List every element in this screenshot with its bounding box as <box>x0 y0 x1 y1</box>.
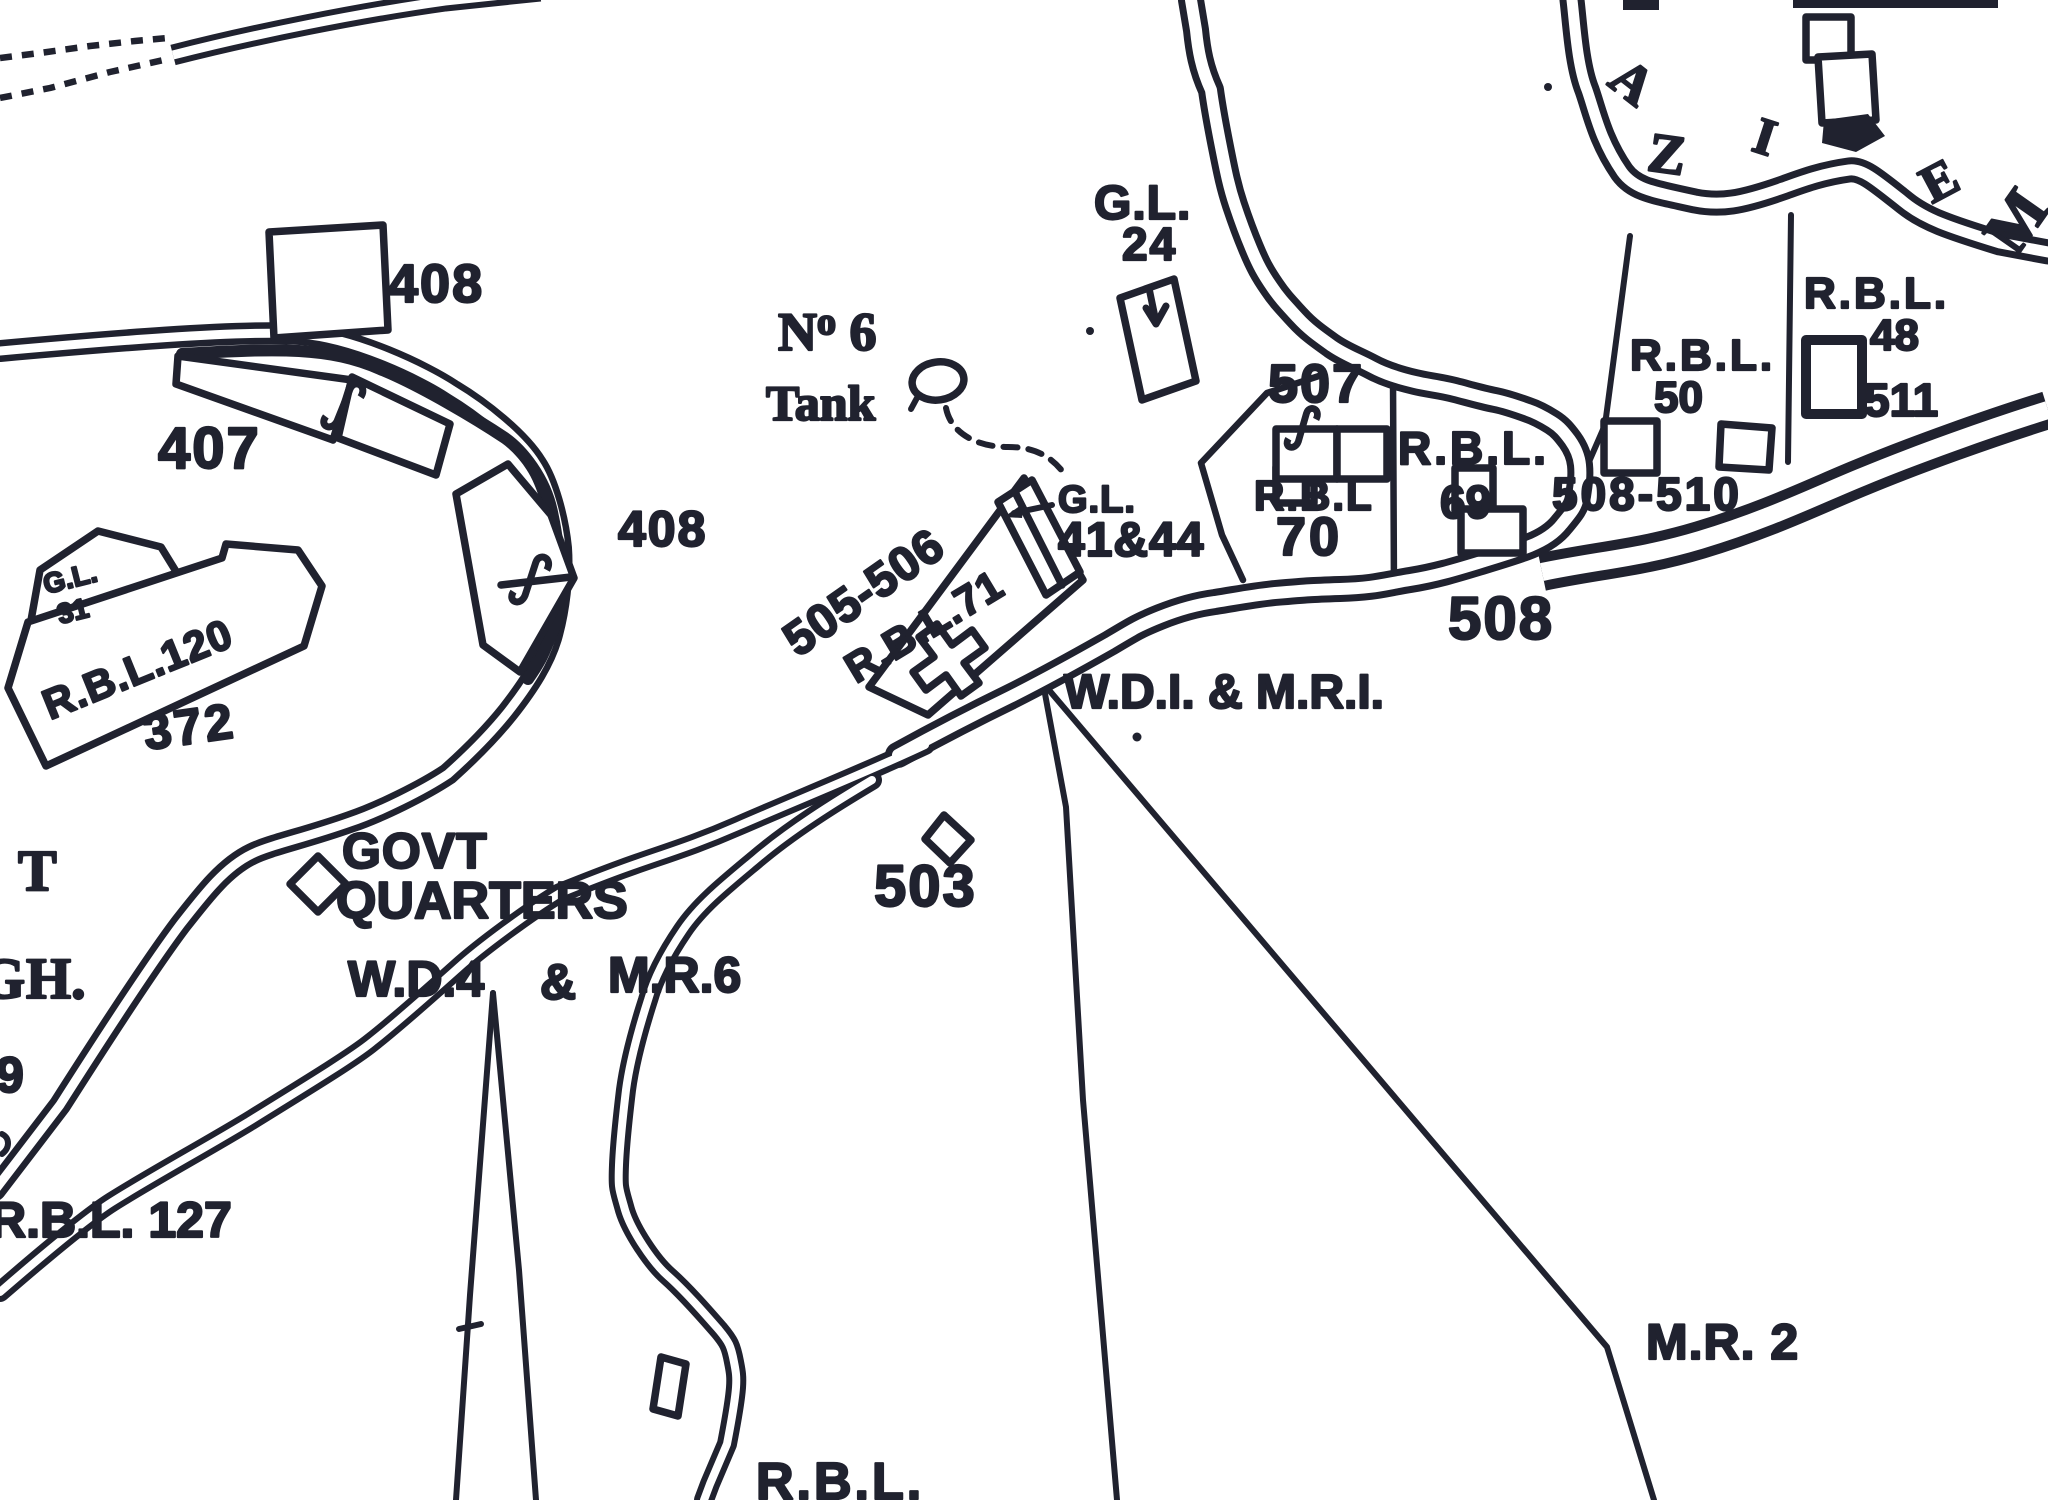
svg-text:W.D.4: W.D.4 <box>348 951 484 1007</box>
svg-text:408: 408 <box>618 501 707 557</box>
svg-text:507: 507 <box>1268 354 1364 414</box>
svg-text:41&44: 41&44 <box>1058 514 1204 567</box>
svg-text:H.: H. <box>26 946 86 1011</box>
svg-text:T: T <box>18 838 57 903</box>
svg-text:408: 408 <box>388 254 484 314</box>
svg-text:508-510: 508-510 <box>1552 468 1742 520</box>
svg-text:407: 407 <box>158 416 261 481</box>
svg-text:GOVT: GOVT <box>342 823 488 879</box>
svg-text:503: 503 <box>874 854 977 919</box>
svg-text:508: 508 <box>1448 585 1554 652</box>
svg-text:69: 69 <box>1440 476 1491 528</box>
svg-text:70: 70 <box>1276 507 1342 567</box>
svg-text:50: 50 <box>1654 373 1703 422</box>
svg-text:48: 48 <box>1870 311 1919 360</box>
svg-text:&: & <box>540 954 576 1010</box>
svg-text:W.D.I. & M.R.I.: W.D.I. & M.R.I. <box>1064 666 1384 719</box>
svg-text:QUARTERS: QUARTERS <box>336 872 628 930</box>
svg-text:R.B.L.: R.B.L. <box>756 1453 924 1500</box>
svg-text:Tank: Tank <box>766 375 876 431</box>
svg-text:24: 24 <box>1122 218 1177 270</box>
svg-text:R.B.L. 127: R.B.L. 127 <box>0 1192 232 1248</box>
svg-text:M.R. 2: M.R. 2 <box>1646 1314 1799 1370</box>
svg-text:G: G <box>0 946 25 1011</box>
svg-text:R.B.L.: R.B.L. <box>1398 422 1549 474</box>
svg-text:511: 511 <box>1864 374 1938 426</box>
svg-text:9: 9 <box>0 1047 24 1103</box>
svg-text:M.R.6: M.R.6 <box>608 947 741 1003</box>
